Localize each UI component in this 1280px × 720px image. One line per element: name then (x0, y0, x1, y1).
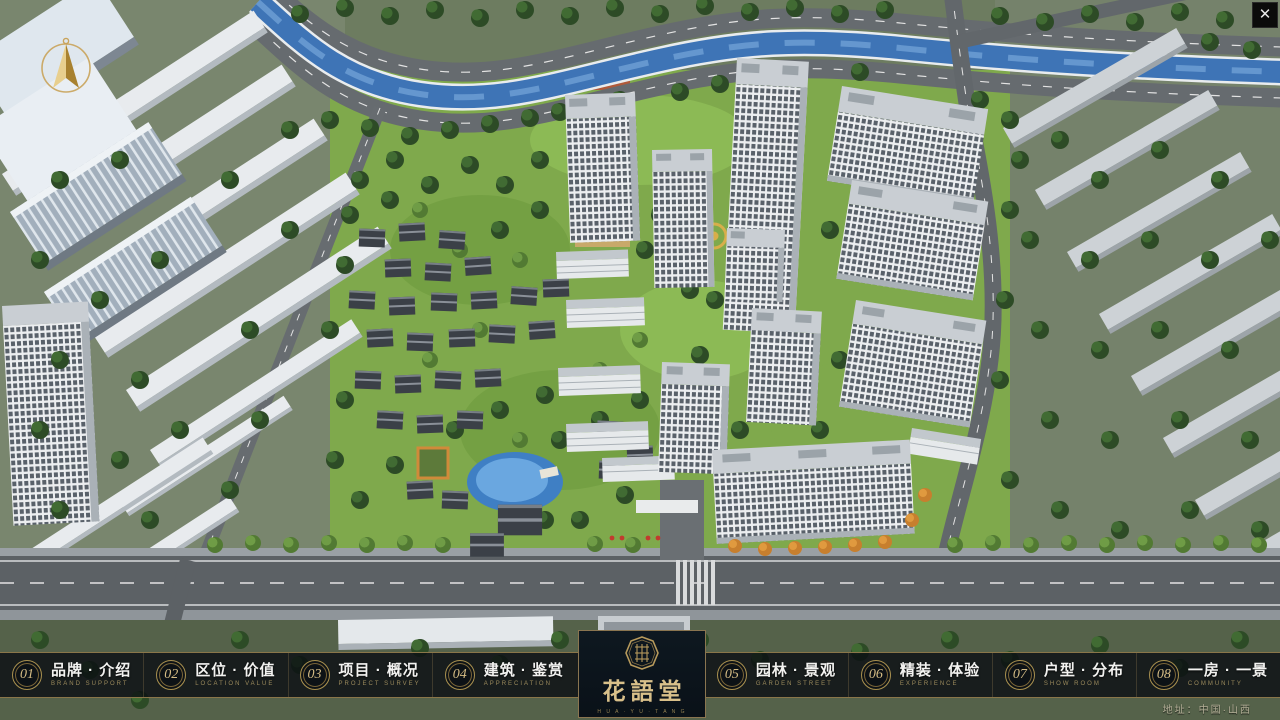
nav-badge-02: 02 (156, 660, 186, 690)
nav-label-cn: 建筑 · 鉴赏 (484, 662, 564, 679)
nav-badge-01: 01 (12, 660, 42, 690)
nav-item-landscape[interactable]: 05 园林 · 景观GARDEN STREET (704, 653, 848, 697)
nav-left-group: 01 品牌 · 介绍BRAND SUPPORT 02 区位 · 价值LOCATI… (0, 653, 576, 697)
nav-number: 04 (453, 667, 467, 683)
compass-icon (36, 34, 96, 96)
nav-label-en: PROJECT SURVEY (339, 681, 421, 688)
nav-item-floorplan-distribution[interactable]: 07 户型 · 分布SHOW ROOM (992, 653, 1136, 697)
nav-item-interior-experience[interactable]: 06 精装 · 体验EXPERIENCE (848, 653, 992, 697)
amenity-building (418, 448, 448, 478)
nav-label-en: GARDEN STREET (756, 681, 836, 688)
project-name-latin: H U A · Y U · T A N G (597, 709, 686, 715)
aerial-render-viewport[interactable] (0, 0, 1280, 720)
nav-number: 08 (1157, 667, 1171, 683)
nav-item-architecture[interactable]: 04 建筑 · 鉴赏APPRECIATION (432, 653, 576, 697)
nav-label-en: EXPERIENCE (900, 681, 980, 688)
nav-item-project-overview[interactable]: 03 项目 · 概况PROJECT SURVEY (288, 653, 432, 697)
nav-label-cn: 园林 · 景观 (756, 662, 836, 679)
nav-right-group: 05 园林 · 景观GARDEN STREET 06 精装 · 体验EXPERI… (704, 653, 1280, 697)
sales-presentation-app: ✕ 01 品牌 · 介绍BRAND SUPPORT 02 区位 · 价值LOCA… (0, 0, 1280, 720)
project-seal-icon (625, 636, 659, 670)
nav-badge-05: 05 (717, 660, 747, 690)
nav-badge-03: 03 (300, 660, 330, 690)
nav-badge-08: 08 (1149, 660, 1179, 690)
nav-number: 06 (869, 667, 883, 683)
close-button[interactable]: ✕ (1252, 2, 1278, 28)
nav-label-cn: 区位 · 价值 (195, 662, 275, 679)
nav-item-room-view[interactable]: 08 一房 · 一景COMMUNITY (1136, 653, 1280, 697)
nav-label-en: COMMUNITY (1188, 681, 1268, 688)
nav-number: 01 (20, 667, 34, 683)
nav-label-en: APPRECIATION (484, 681, 564, 688)
nav-item-location-value[interactable]: 02 区位 · 价值LOCATION VALUE (143, 653, 287, 697)
nav-label-cn: 户型 · 分布 (1044, 662, 1124, 679)
nav-label-cn: 精装 · 体验 (900, 662, 980, 679)
nav-label-cn: 品牌 · 介绍 (51, 662, 131, 679)
nav-label-cn: 一房 · 一景 (1188, 662, 1268, 679)
address-note: 地址：中国·山西 (1163, 701, 1252, 716)
nav-label-cn: 项目 · 概况 (339, 662, 421, 679)
nav-badge-06: 06 (861, 660, 891, 690)
nav-label-en: LOCATION VALUE (195, 681, 275, 688)
nav-number: 05 (725, 667, 739, 683)
nav-badge-07: 07 (1005, 660, 1035, 690)
nav-label-en: BRAND SUPPORT (51, 681, 131, 688)
pond (467, 452, 563, 512)
nav-number: 07 (1013, 667, 1027, 683)
project-name: 花語堂 (598, 672, 687, 706)
nav-item-brand-intro[interactable]: 01 品牌 · 介绍BRAND SUPPORT (0, 653, 143, 697)
project-logo-plaque[interactable]: 花語堂 H U A · Y U · T A N G (578, 630, 706, 718)
nav-number: 03 (308, 667, 322, 683)
nav-number: 02 (164, 667, 178, 683)
nav-label-en: SHOW ROOM (1044, 681, 1124, 688)
nav-badge-04: 04 (445, 660, 475, 690)
